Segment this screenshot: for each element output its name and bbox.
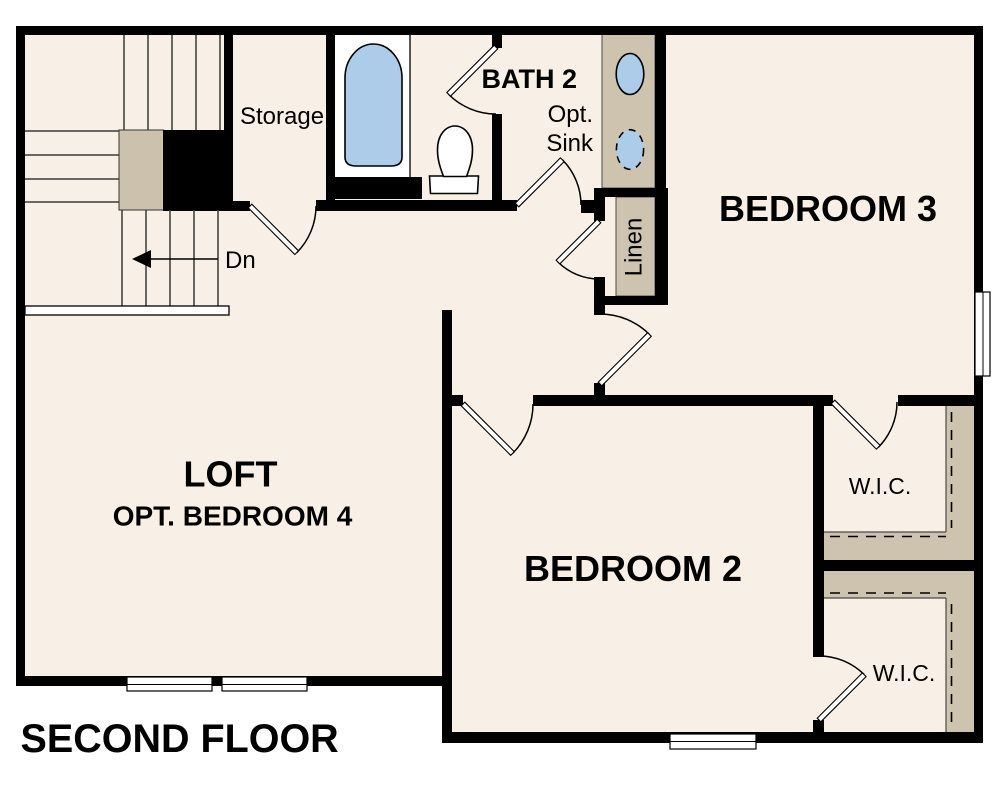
svg-text:LOFT: LOFT <box>184 454 278 495</box>
svg-text:W.I.C.: W.I.C. <box>873 660 936 686</box>
svg-text:OPT. BEDROOM 4: OPT. BEDROOM 4 <box>113 501 353 532</box>
svg-text:SECOND FLOOR: SECOND FLOOR <box>21 717 339 761</box>
svg-text:Sink: Sink <box>546 130 594 157</box>
svg-text:Linen: Linen <box>621 218 648 277</box>
svg-text:W.I.C.: W.I.C. <box>849 473 912 499</box>
svg-text:BATH 2: BATH 2 <box>482 64 578 94</box>
svg-text:BEDROOM 2: BEDROOM 2 <box>524 548 742 589</box>
svg-text:Opt.: Opt. <box>548 101 593 128</box>
svg-text:Dn: Dn <box>225 247 256 274</box>
svg-text:BEDROOM 3: BEDROOM 3 <box>719 188 937 229</box>
svg-text:Storage: Storage <box>240 103 324 130</box>
